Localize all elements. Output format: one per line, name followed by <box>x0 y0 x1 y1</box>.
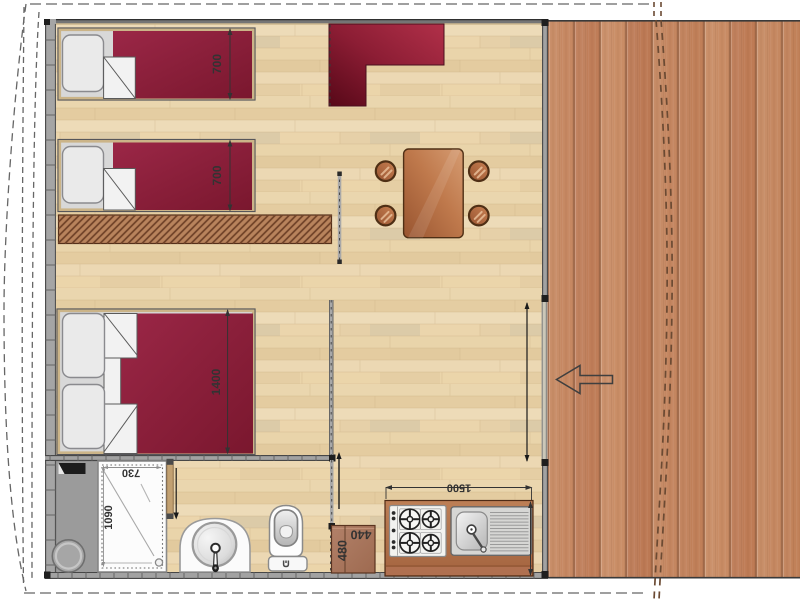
svg-text:700: 700 <box>210 54 224 74</box>
svg-text:440: 440 <box>351 528 372 542</box>
svg-text:700: 700 <box>210 165 224 185</box>
svg-text:1400: 1400 <box>209 368 223 395</box>
svg-text:1500: 1500 <box>447 482 471 494</box>
svg-text:480: 480 <box>336 540 350 561</box>
svg-text:730: 730 <box>122 467 140 479</box>
svg-text:1090: 1090 <box>103 505 115 529</box>
